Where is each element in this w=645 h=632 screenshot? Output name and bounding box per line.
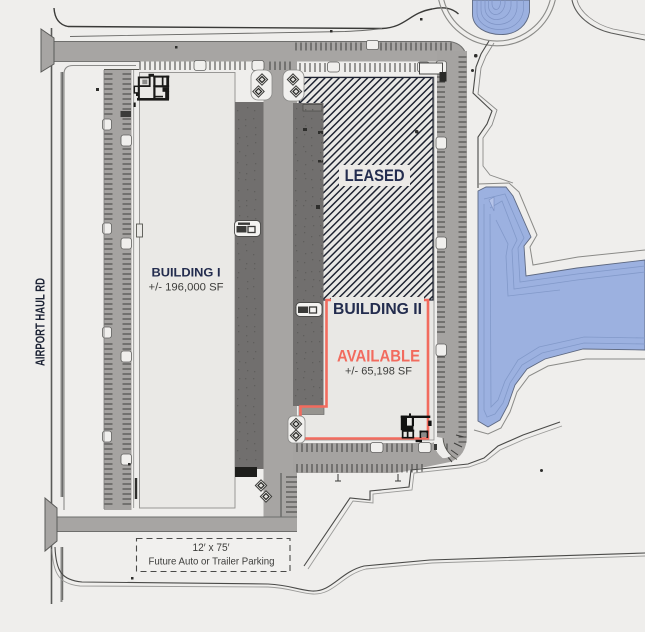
svg-text:Future Auto or Trailer Parking: Future Auto or Trailer Parking [149, 557, 275, 568]
svg-text:BUILDING II: BUILDING II [333, 301, 422, 318]
svg-text:AIRPORT HAUL RD: AIRPORT HAUL RD [32, 278, 47, 366]
svg-text:+/- 196,000 SF: +/- 196,000 SF [149, 282, 224, 294]
svg-text:BUILDING I: BUILDING I [152, 266, 221, 280]
svg-text:AVAILABLE: AVAILABLE [337, 347, 420, 366]
svg-text:12′ x 75′: 12′ x 75′ [193, 542, 230, 554]
svg-text:+/- 65,198 SF: +/- 65,198 SF [345, 365, 412, 377]
svg-text:LEASED: LEASED [345, 166, 405, 185]
